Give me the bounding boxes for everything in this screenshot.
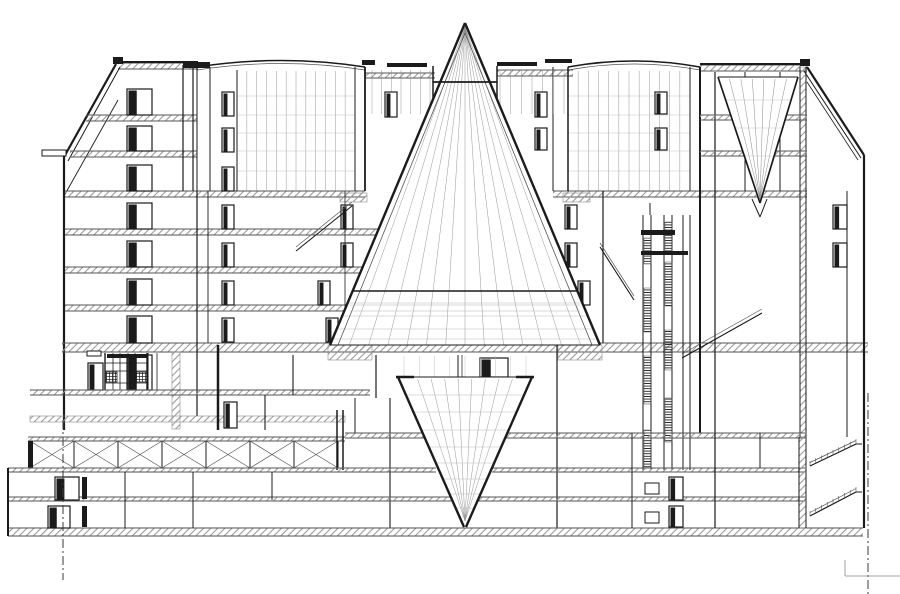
left-glass-hall — [197, 61, 367, 343]
walkway-truss — [28, 410, 345, 470]
stairwell — [799, 437, 862, 528]
building-section-svg — [0, 0, 900, 594]
elevator-shaft — [641, 203, 690, 470]
right-wing — [700, 67, 864, 528]
drawing-canvas — [0, 0, 900, 594]
